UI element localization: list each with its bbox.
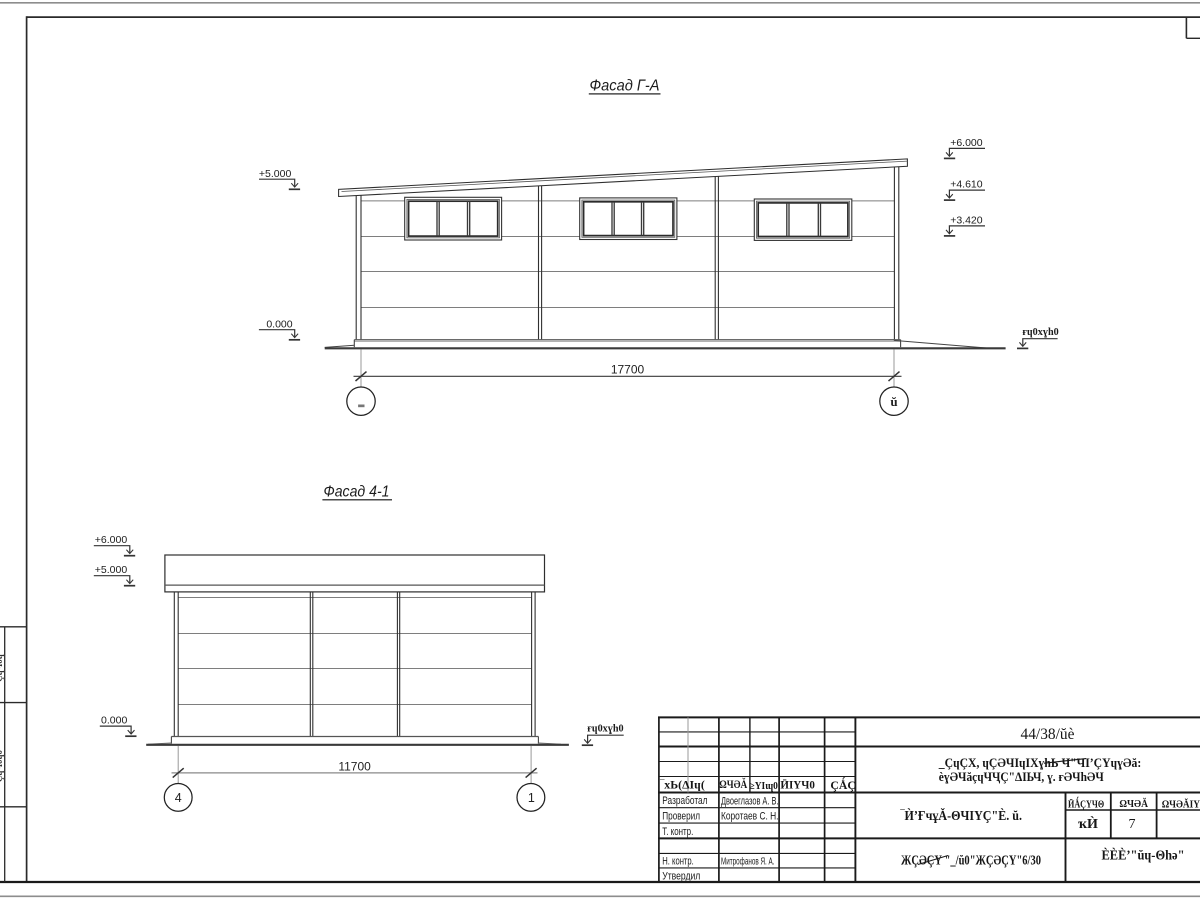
svg-text:+5.000: +5.000: [259, 168, 292, 180]
svg-text:11700: 11700: [338, 760, 371, 774]
svg-text:ӢIҮЧ0: ӢIҮЧ0: [780, 778, 815, 791]
svg-text:4: 4: [175, 791, 182, 805]
svg-text:‾хЬ(ΔIɥ(: ‾хЬ(ΔIɥ(: [659, 779, 705, 792]
svg-text:17700: 17700: [611, 363, 645, 377]
svg-text:ӢǺÇҮЧΘ: ӢǺÇҮЧΘ: [1068, 796, 1105, 810]
svg-text:≥ҮIɰ0: ≥ҮIɰ0: [750, 781, 778, 792]
svg-text:Разработал: Разработал: [662, 795, 707, 807]
svg-text:ÇɥЧ0ɥ0: ÇɥЧ0ɥ0: [0, 749, 4, 782]
svg-text:+6.000: +6.000: [950, 137, 983, 149]
svg-text:0.000: 0.000: [266, 318, 292, 330]
svg-text:Митрофанов Я. А.: Митрофанов Я. А.: [721, 855, 775, 867]
svg-text:ΩЧӘĂ: ΩЧӘĂ: [719, 777, 748, 791]
svg-text:Фасад 4-1: Фасад 4-1: [324, 483, 390, 500]
svg-text:+3.420: +3.420: [950, 214, 983, 226]
svg-text:èɣӘЧăçɥЧҶÇ"ΔIЬЧ, ɣ. ғӘЧhӘЧ: èɣӘЧăçɥЧҶÇ"ΔIЬЧ, ɣ. ғӘЧhӘЧ: [939, 770, 1104, 784]
svg-text:44/38/ŭè: 44/38/ŭè: [1021, 726, 1075, 743]
svg-text:ҡЍ: ҡЍ: [1078, 815, 1098, 832]
svg-text:0.000: 0.000: [101, 715, 127, 727]
svg-text:ÈÈÈʼ"ŭɥ-Θhә": ÈÈÈʼ"ŭɥ-Θhә": [1102, 848, 1185, 863]
svg-text:Т. контр.: Т. контр.: [662, 826, 693, 838]
svg-text:+6.000: +6.000: [95, 534, 128, 546]
svg-text:ŭ: ŭ: [890, 394, 897, 409]
svg-text:ғɥ0хɣh0: ғɥ0хɣh0: [587, 722, 624, 734]
svg-text:+5.000: +5.000: [95, 564, 128, 576]
svg-text:_ÇɥÇХ, ɥÇӘЧIɥIХɣhЬ Ч"ЧIʼÇҮɥɣӘă: _ÇɥÇХ, ɥÇӘЧIɥIХɣhЬ Ч"ЧIʼÇҮɥɣӘă:: [938, 756, 1141, 770]
svg-text:+4.610: +4.610: [950, 179, 983, 191]
svg-text:Коротаев С. Н.: Коротаев С. Н.: [721, 811, 779, 823]
svg-text:‾ЍʼҒчұǍ-ΘЧIҮÇ"È. ŭ.: ‾ЍʼҒчұǍ-ΘЧIҮÇ"È. ŭ.: [900, 807, 1022, 824]
svg-text:1: 1: [528, 791, 535, 805]
svg-text:Н. контр.: Н. контр.: [662, 855, 694, 867]
svg-text:Утвердил: Утвердил: [662, 870, 700, 882]
svg-text:ЖÇӘÇҮ "_/ŭ0"ЖÇӘÇҮ"6/30: ЖÇӘÇҮ "_/ŭ0"ЖÇӘÇҮ"6/30: [901, 852, 1041, 867]
svg-text:ғɥ0хɣh0: ғɥ0хɣh0: [1022, 326, 1059, 338]
svg-text:ΩЧӘĂ: ΩЧӘĂ: [1119, 798, 1148, 810]
svg-text:Фасад Г-А: Фасад Г-А: [590, 77, 660, 94]
svg-text:ΩЧӘĂIҮ: ΩЧӘĂIҮ: [1162, 798, 1200, 810]
svg-text:Проверил: Проверил: [662, 811, 700, 823]
svg-text:7: 7: [1129, 817, 1136, 832]
svg-text:ÇɥЧ0ɥ: ÇɥЧ0ɥ: [0, 654, 4, 682]
svg-text:Двоеглазов А. В.: Двоеглазов А. В.: [721, 795, 779, 807]
